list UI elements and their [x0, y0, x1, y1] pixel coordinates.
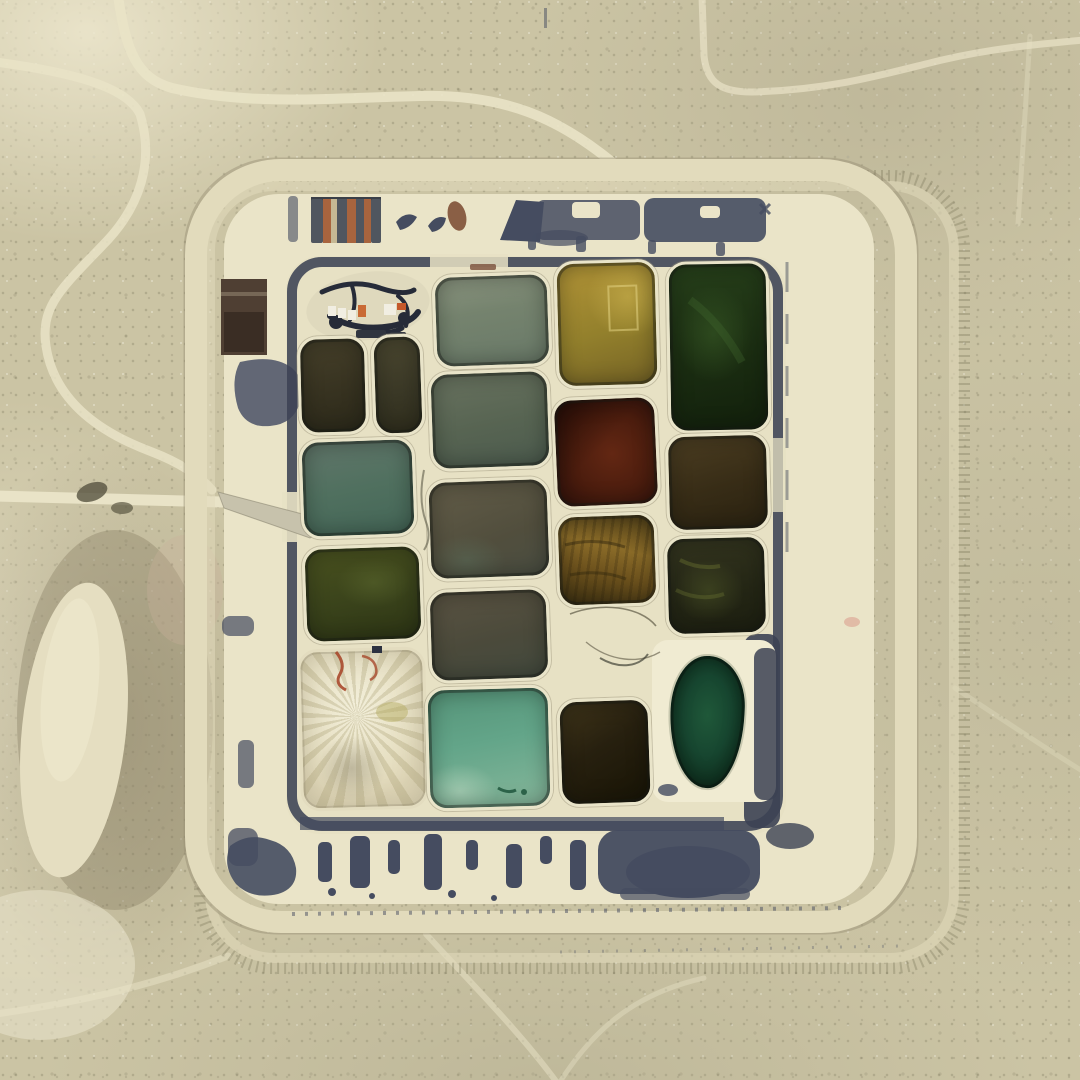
tank-stripe	[364, 199, 371, 243]
stain-hole	[700, 206, 720, 218]
smear-drip	[540, 836, 552, 864]
satellite-image	[0, 0, 1080, 1080]
pond-amber	[554, 511, 659, 609]
pond-pair-right-olive	[370, 333, 426, 437]
striped-tanks	[311, 197, 381, 243]
berm-gap-right	[770, 438, 786, 512]
tank-stripe	[371, 199, 381, 243]
pond-gray-green	[427, 368, 552, 472]
corner-smear	[288, 196, 298, 242]
smear-dot	[369, 893, 375, 899]
brown-pad-shadow	[224, 312, 264, 352]
pond-gray-brown	[426, 586, 551, 684]
stain-drip	[716, 242, 725, 256]
truck	[348, 310, 356, 320]
smear-drip	[466, 840, 478, 870]
tank-stripe	[331, 199, 337, 243]
pad-dark-edge	[754, 648, 778, 800]
desert-mark	[544, 8, 547, 28]
dotted-track	[560, 946, 900, 952]
stain-hole	[572, 202, 600, 218]
scrub-blob	[111, 502, 133, 514]
tank-stripe	[323, 199, 331, 243]
pond-black-olive	[664, 534, 770, 638]
stain-drip	[576, 236, 586, 252]
smear-drip	[570, 840, 586, 890]
track-bottom-2	[560, 978, 704, 1080]
pad-stain	[658, 784, 678, 796]
smear-drip	[424, 834, 442, 890]
berm-corner-smear	[766, 823, 814, 849]
pond-teal-gray	[298, 436, 417, 540]
light-sand-patch	[0, 890, 135, 1040]
stain-blob-left-ring	[238, 740, 254, 788]
berm-bottom-band	[300, 817, 724, 830]
smear-shadow	[620, 888, 750, 900]
pond-umber-brown	[665, 432, 772, 534]
truck	[338, 308, 346, 318]
pond-turquoise	[424, 684, 553, 811]
pink-marker	[844, 617, 860, 627]
stain-mass	[644, 198, 766, 242]
pond-yellow-olive	[553, 259, 660, 390]
road-top-right	[702, 0, 1080, 92]
berm-gap	[430, 254, 508, 270]
smear-drip	[388, 840, 400, 874]
smear-drip	[318, 842, 332, 882]
road-left-loop	[0, 62, 212, 490]
brown-pad-seam	[221, 292, 267, 296]
smear-dot	[448, 890, 456, 898]
smear-dot	[328, 888, 336, 896]
stain-blob-left-ring	[222, 616, 254, 636]
stain-drip	[648, 240, 656, 254]
truck	[328, 306, 336, 316]
stain-drip	[528, 232, 536, 250]
pond-pair-left-olive	[297, 335, 370, 436]
pond-taupe	[425, 476, 552, 582]
equipment-blob	[398, 312, 410, 324]
rust-berm-segment	[470, 264, 496, 270]
smear-dot	[491, 895, 497, 901]
pond-olive-green	[301, 543, 424, 645]
tank-stripe	[311, 199, 323, 243]
orange-container	[397, 303, 406, 310]
track-bottom-right	[955, 688, 1080, 772]
track-faint-right	[1018, 36, 1030, 224]
tank-stripe	[337, 199, 347, 243]
pond-dark-brown	[556, 696, 654, 807]
truck	[384, 304, 396, 315]
pond-dry-white	[297, 646, 429, 811]
pond-sage-green	[431, 271, 552, 370]
road-top-left	[118, 0, 612, 162]
tank-stripe	[356, 199, 364, 243]
pond-dark-green	[666, 260, 772, 434]
orange-container	[358, 305, 366, 317]
smear-drip	[350, 836, 370, 888]
pond-maroon	[551, 394, 662, 511]
tank-stripe	[347, 199, 356, 243]
smear-drip	[506, 844, 522, 888]
